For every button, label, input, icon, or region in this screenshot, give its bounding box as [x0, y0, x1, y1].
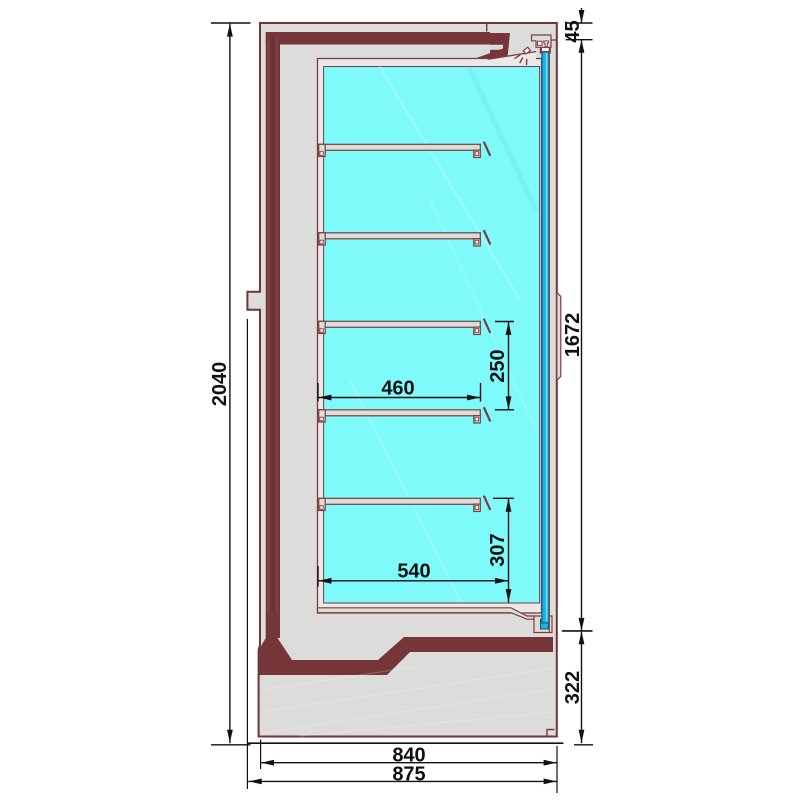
svg-text:307: 307 — [487, 533, 509, 566]
svg-text:2040: 2040 — [209, 362, 231, 407]
svg-text:540: 540 — [397, 561, 430, 583]
svg-text:250: 250 — [487, 349, 509, 382]
svg-text:322: 322 — [562, 671, 584, 704]
svg-text:460: 460 — [381, 378, 414, 400]
svg-text:1672: 1672 — [562, 313, 584, 358]
svg-text:45: 45 — [562, 20, 584, 42]
svg-text:875: 875 — [392, 763, 425, 785]
